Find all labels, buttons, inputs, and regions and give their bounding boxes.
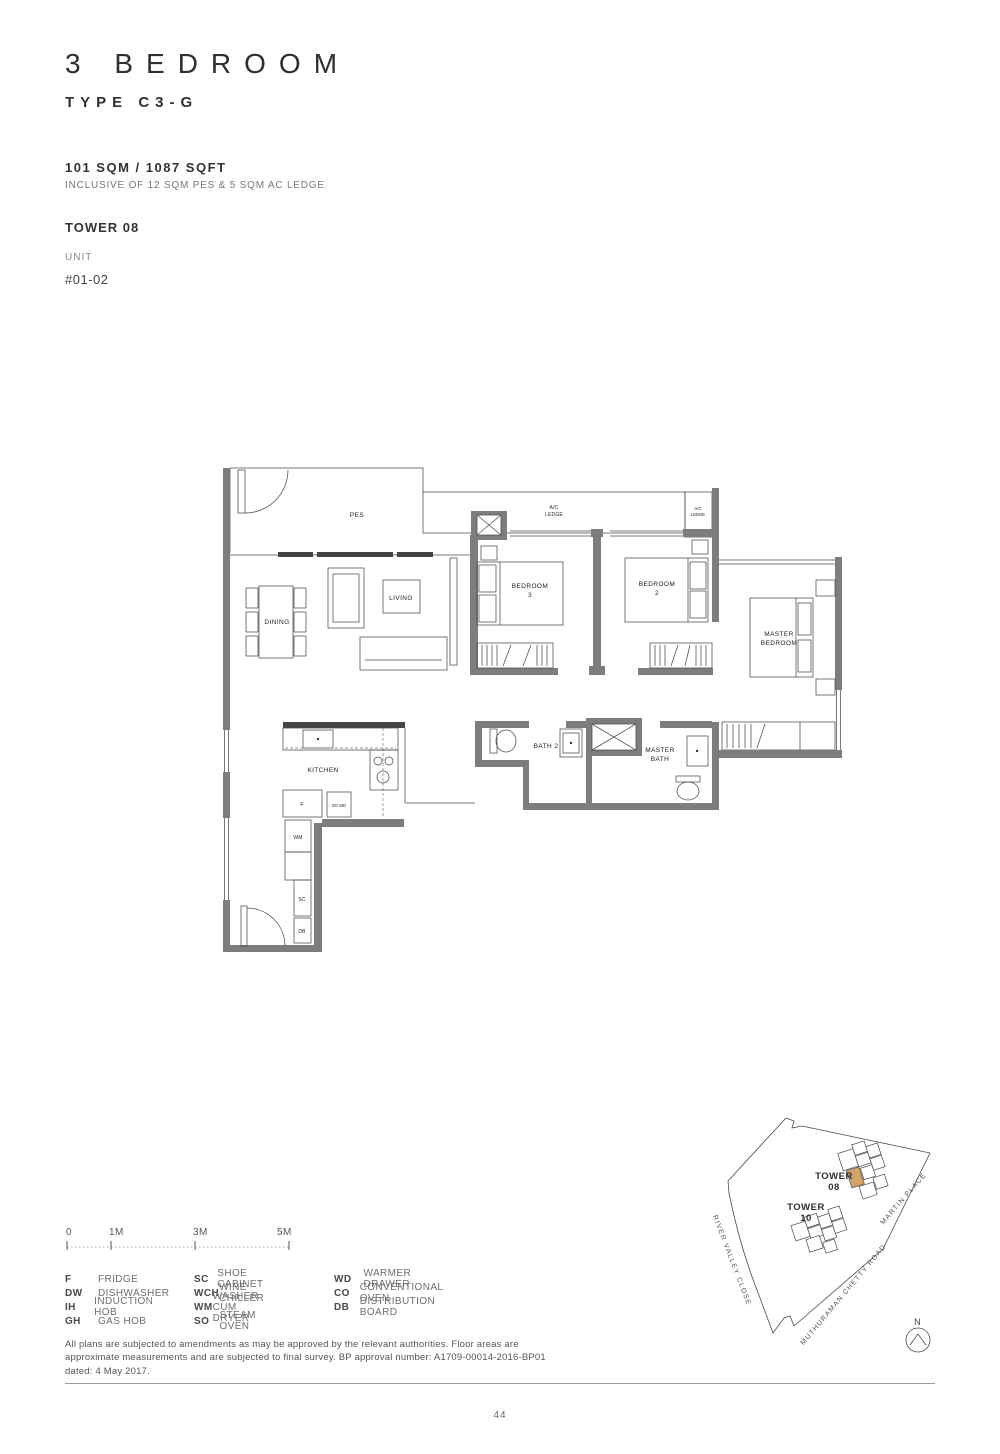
corridor-lines — [405, 728, 475, 803]
legend-item: FFRIDGE — [65, 1272, 169, 1286]
street-river-valley-close: RIVER VALLEY CLOSE — [711, 1214, 752, 1307]
master-bedroom-label-1: MASTER — [764, 631, 794, 638]
legend-item: SOSTEAM OVEN — [194, 1314, 273, 1328]
unit-number: #01-02 — [65, 272, 108, 287]
legend-abbr: WM — [194, 1302, 213, 1313]
legend-label: DISTRIBUTION BOARD — [360, 1296, 451, 1318]
bath2-label: BATH 2 — [534, 743, 559, 750]
scale-tick-3m: 3M — [193, 1227, 208, 1238]
room-pes: PES — [230, 468, 470, 557]
ac-ledge-small-label-2: LEDGE — [691, 512, 705, 517]
dining-area: DINING — [246, 586, 306, 658]
tower-08-block — [836, 1137, 892, 1202]
street-muthuraman-chetty-road: MUTHURAMAN CHETTY ROAD — [800, 1243, 888, 1346]
footer-divider — [65, 1383, 935, 1384]
site-map: TOWER 08 TOWER 10 RIVER VALLEY CLOSE MUT… — [698, 1088, 973, 1363]
shower-shaft — [586, 718, 642, 756]
ac-ledge: A/C LEDGE A/C LEDGE — [423, 488, 719, 558]
ac-ledge-small-label-1: A/C — [695, 506, 702, 511]
map-tower08-label-1: TOWER — [815, 1171, 853, 1182]
living-area: LIVING — [328, 558, 457, 670]
bedroom2-label-2: 2 — [655, 590, 659, 597]
master-bath-label-1: MASTER — [645, 747, 675, 754]
pes-label: PES — [350, 512, 364, 519]
tower-label: TOWER 08 — [65, 220, 139, 235]
bedroom2-label-1: BEDROOM — [639, 581, 675, 588]
dining-label: DINING — [264, 619, 289, 626]
north-label: N — [914, 1317, 922, 1327]
legend-abbr: DW — [65, 1288, 98, 1299]
scale-tick-0: 0 — [66, 1227, 72, 1238]
room-kitchen: KITCHEN F SO WD WM SC DB — [283, 722, 405, 949]
legend-item: DBDISTRIBUTION BOARD — [334, 1300, 450, 1314]
room-bedroom-2: BEDROOM 2 — [625, 540, 719, 675]
map-tower10-label-2: 10 — [800, 1213, 812, 1224]
room-master-bath: MASTER BATH — [645, 736, 708, 800]
page-number: 44 — [0, 1410, 1000, 1421]
header: 3 BEDROOM TYPE C3-G — [65, 48, 350, 111]
steam-oven-warmer-label: SO WD — [332, 803, 346, 808]
distribution-board-label: DB — [298, 929, 306, 935]
bedroom3-label-1: BEDROOM — [512, 583, 548, 590]
map-tower08-label-2: 08 — [828, 1182, 840, 1193]
legend-abbr: SO — [194, 1316, 219, 1327]
scale-tick-1m: 1M — [109, 1227, 124, 1238]
scale-bar: 0 1M 3M 5M — [65, 1226, 305, 1254]
disclaimer: All plans are subjected to amendments as… — [65, 1338, 550, 1378]
unit-label: UNIT — [65, 252, 92, 263]
area-note: INCLUSIVE OF 12 SQM PES & 5 SQM AC LEDGE — [65, 180, 325, 191]
room-bedroom-3: BEDROOM 3 — [470, 535, 563, 675]
ac-ledge-label-2: LEDGE — [545, 512, 563, 518]
master-bath-label-2: BATH — [651, 756, 669, 763]
partition-wall — [589, 535, 605, 675]
fridge-label: F — [300, 802, 303, 808]
legend-label: STEAM OVEN — [219, 1310, 273, 1332]
unit-type: TYPE C3-G — [65, 94, 350, 111]
legend-abbr: IH — [65, 1302, 94, 1313]
map-tower10-label-1: TOWER — [787, 1202, 825, 1213]
room-bath-2: BATH 2 — [490, 729, 582, 757]
door-arc — [241, 906, 285, 946]
living-label: LIVING — [389, 595, 413, 602]
legend-column-1: FFRIDGE DWDISHWASHER IHINDUCTION HOB GHG… — [65, 1272, 169, 1328]
north-arrow-icon: N — [906, 1317, 930, 1352]
legend-column-3: WDWARMER DRAWER COCONVENTIONAL OVEN DBDI… — [334, 1272, 450, 1314]
legend-item: IHINDUCTION HOB — [65, 1300, 169, 1314]
master-bedroom-label-2: BEDROOM — [761, 640, 797, 647]
legend-abbr: DB — [334, 1302, 360, 1313]
washer-label: WM — [293, 835, 302, 841]
legend-label: FRIDGE — [98, 1274, 138, 1285]
ac-ledge-label-1: A/C — [550, 505, 559, 511]
legend-abbr: F — [65, 1274, 98, 1285]
floor-plan: PES A/C LEDGE A/C LEDGE — [220, 455, 865, 965]
page-title: 3 BEDROOM — [65, 48, 350, 80]
legend-label: GAS HOB — [98, 1316, 146, 1327]
kitchen-label: KITCHEN — [307, 767, 338, 774]
legend-column-2: SCSHOE CABINET WCHWINE CHILLER WMWASHER … — [194, 1272, 273, 1328]
shoe-cabinet-label: SC — [298, 897, 306, 903]
area-size: 101 SQM / 1087 SQFT — [65, 160, 226, 175]
legend-abbr: SC — [194, 1274, 217, 1285]
legend-abbr: CO — [334, 1288, 360, 1299]
exterior-walls — [223, 468, 322, 952]
room-master-bedroom: MASTER BEDROOM — [719, 557, 842, 758]
bedroom3-label-2: 3 — [528, 592, 532, 599]
legend-abbr: GH — [65, 1316, 98, 1327]
scale-tick-5m: 5M — [277, 1227, 292, 1238]
brochure-page: 3 BEDROOM TYPE C3-G 101 SQM / 1087 SQFT … — [0, 0, 1000, 1454]
tower-10-block — [790, 1206, 852, 1261]
street-martin-place: MARTIN PLACE — [880, 1172, 929, 1226]
